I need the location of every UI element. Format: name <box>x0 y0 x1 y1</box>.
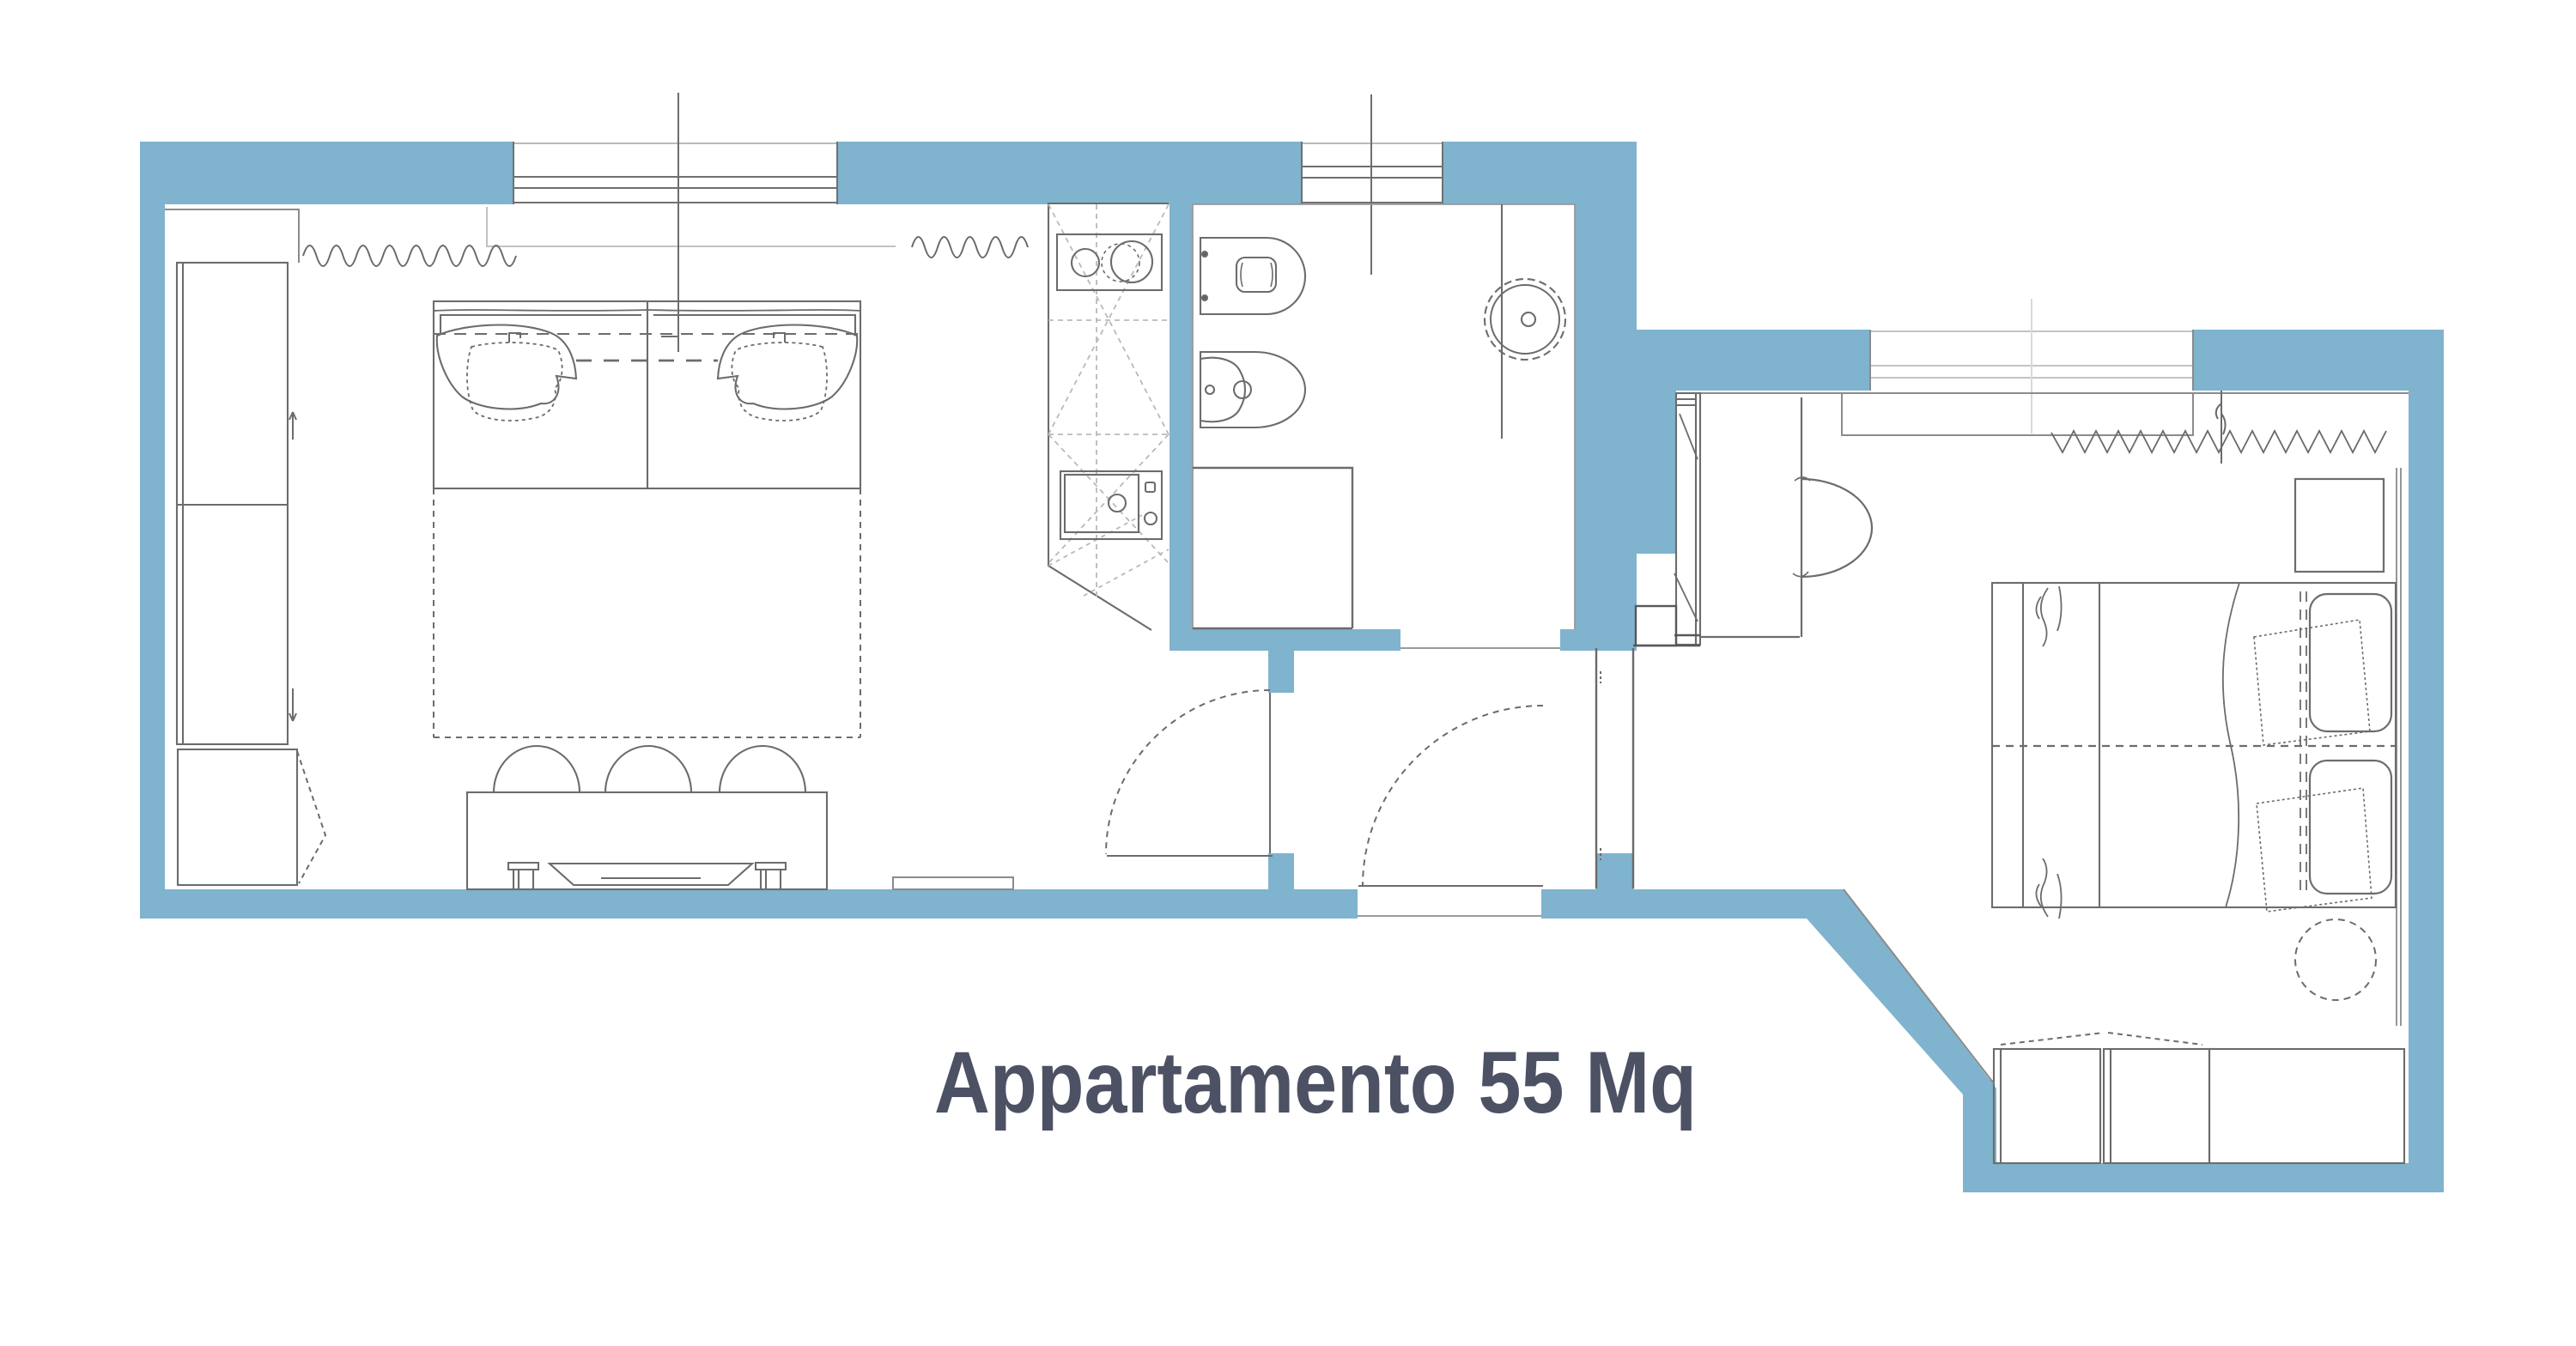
svg-text:Appartamento 55 Mq: Appartamento 55 Mq <box>934 1034 1697 1131</box>
